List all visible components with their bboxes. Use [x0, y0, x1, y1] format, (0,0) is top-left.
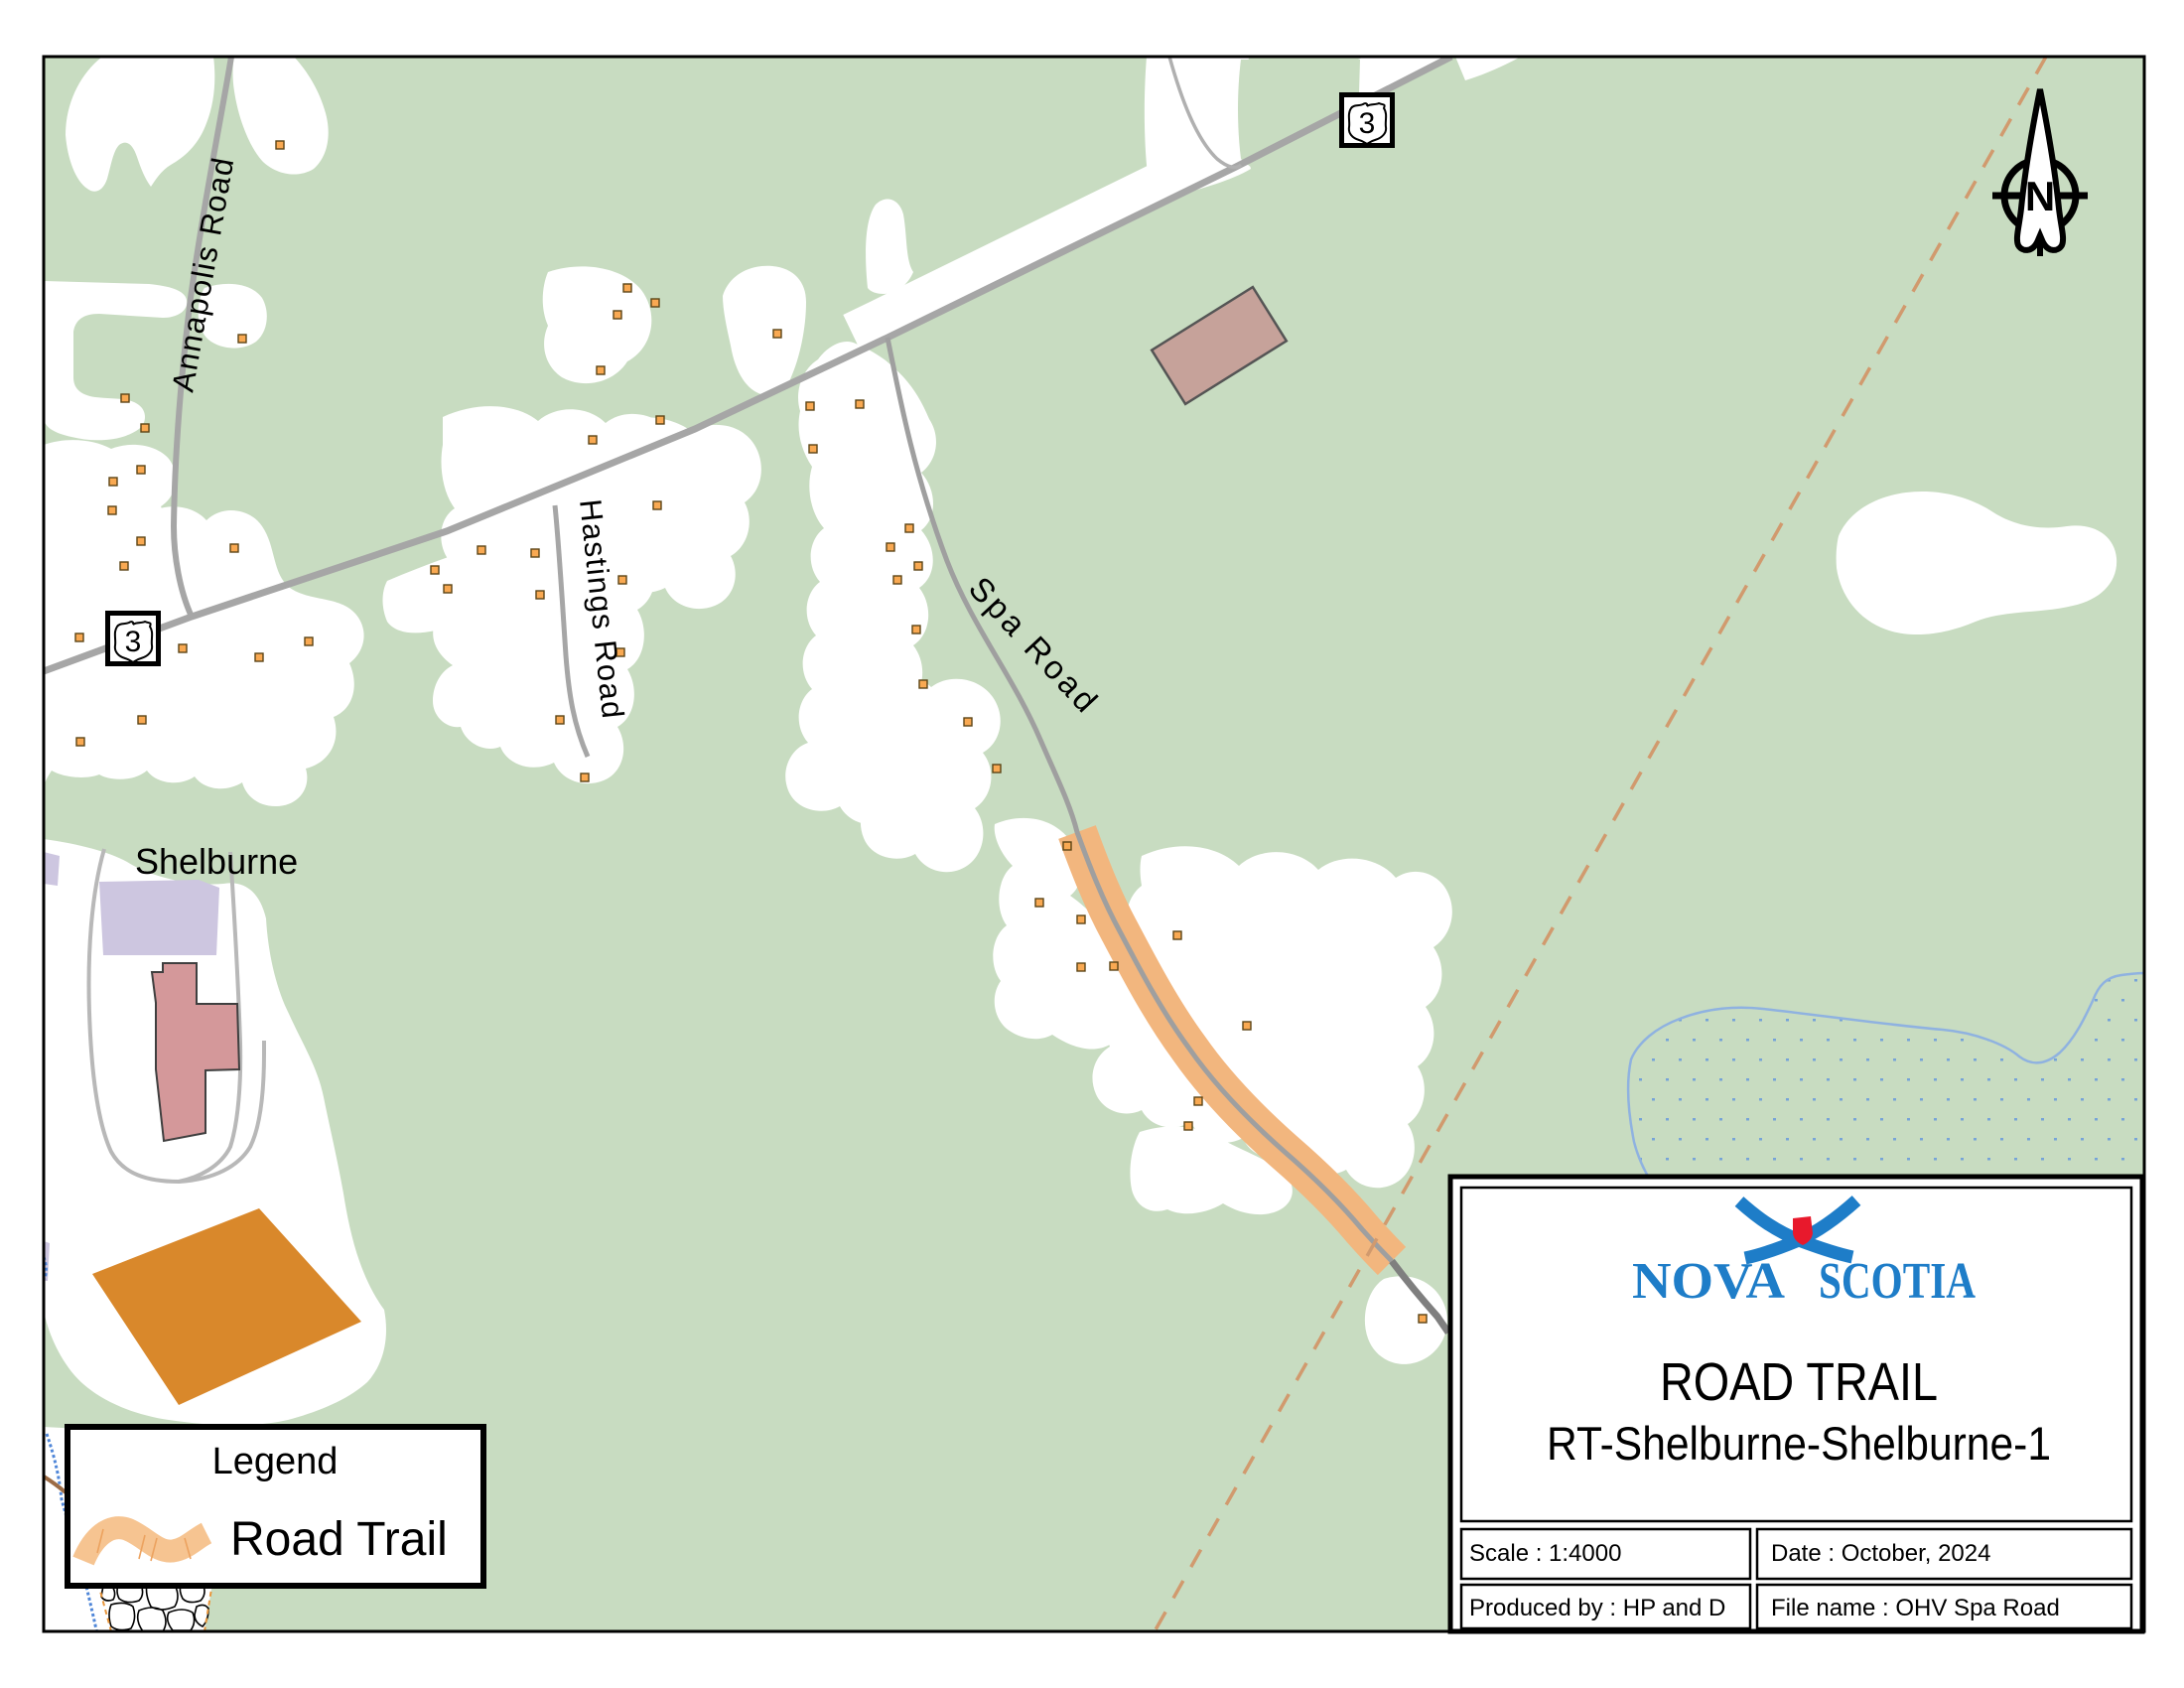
- svg-text:3: 3: [1359, 107, 1376, 140]
- svg-text:Road Trail: Road Trail: [230, 1513, 448, 1566]
- svg-text:N: N: [2025, 173, 2055, 219]
- svg-text:RT-Shelburne-Shelburne-1: RT-Shelburne-Shelburne-1: [1547, 1417, 2051, 1470]
- svg-text:Produced by : HP and D: Produced by : HP and D: [1469, 1595, 1725, 1621]
- svg-text:3: 3: [125, 626, 142, 658]
- svg-text:SCOTIA: SCOTIA: [1819, 1253, 1976, 1310]
- svg-text:ROAD TRAIL: ROAD TRAIL: [1660, 1352, 1938, 1412]
- svg-text:File name : OHV Spa Road: File name : OHV Spa Road: [1771, 1595, 2060, 1621]
- svg-text:Legend: Legend: [212, 1441, 339, 1482]
- svg-text:Date : October, 2024: Date : October, 2024: [1771, 1540, 1990, 1567]
- svg-text:Scale : 1:4000: Scale : 1:4000: [1469, 1540, 1621, 1567]
- svg-text:NOVA: NOVA: [1632, 1253, 1785, 1310]
- svg-text:Shelburne: Shelburne: [135, 841, 298, 882]
